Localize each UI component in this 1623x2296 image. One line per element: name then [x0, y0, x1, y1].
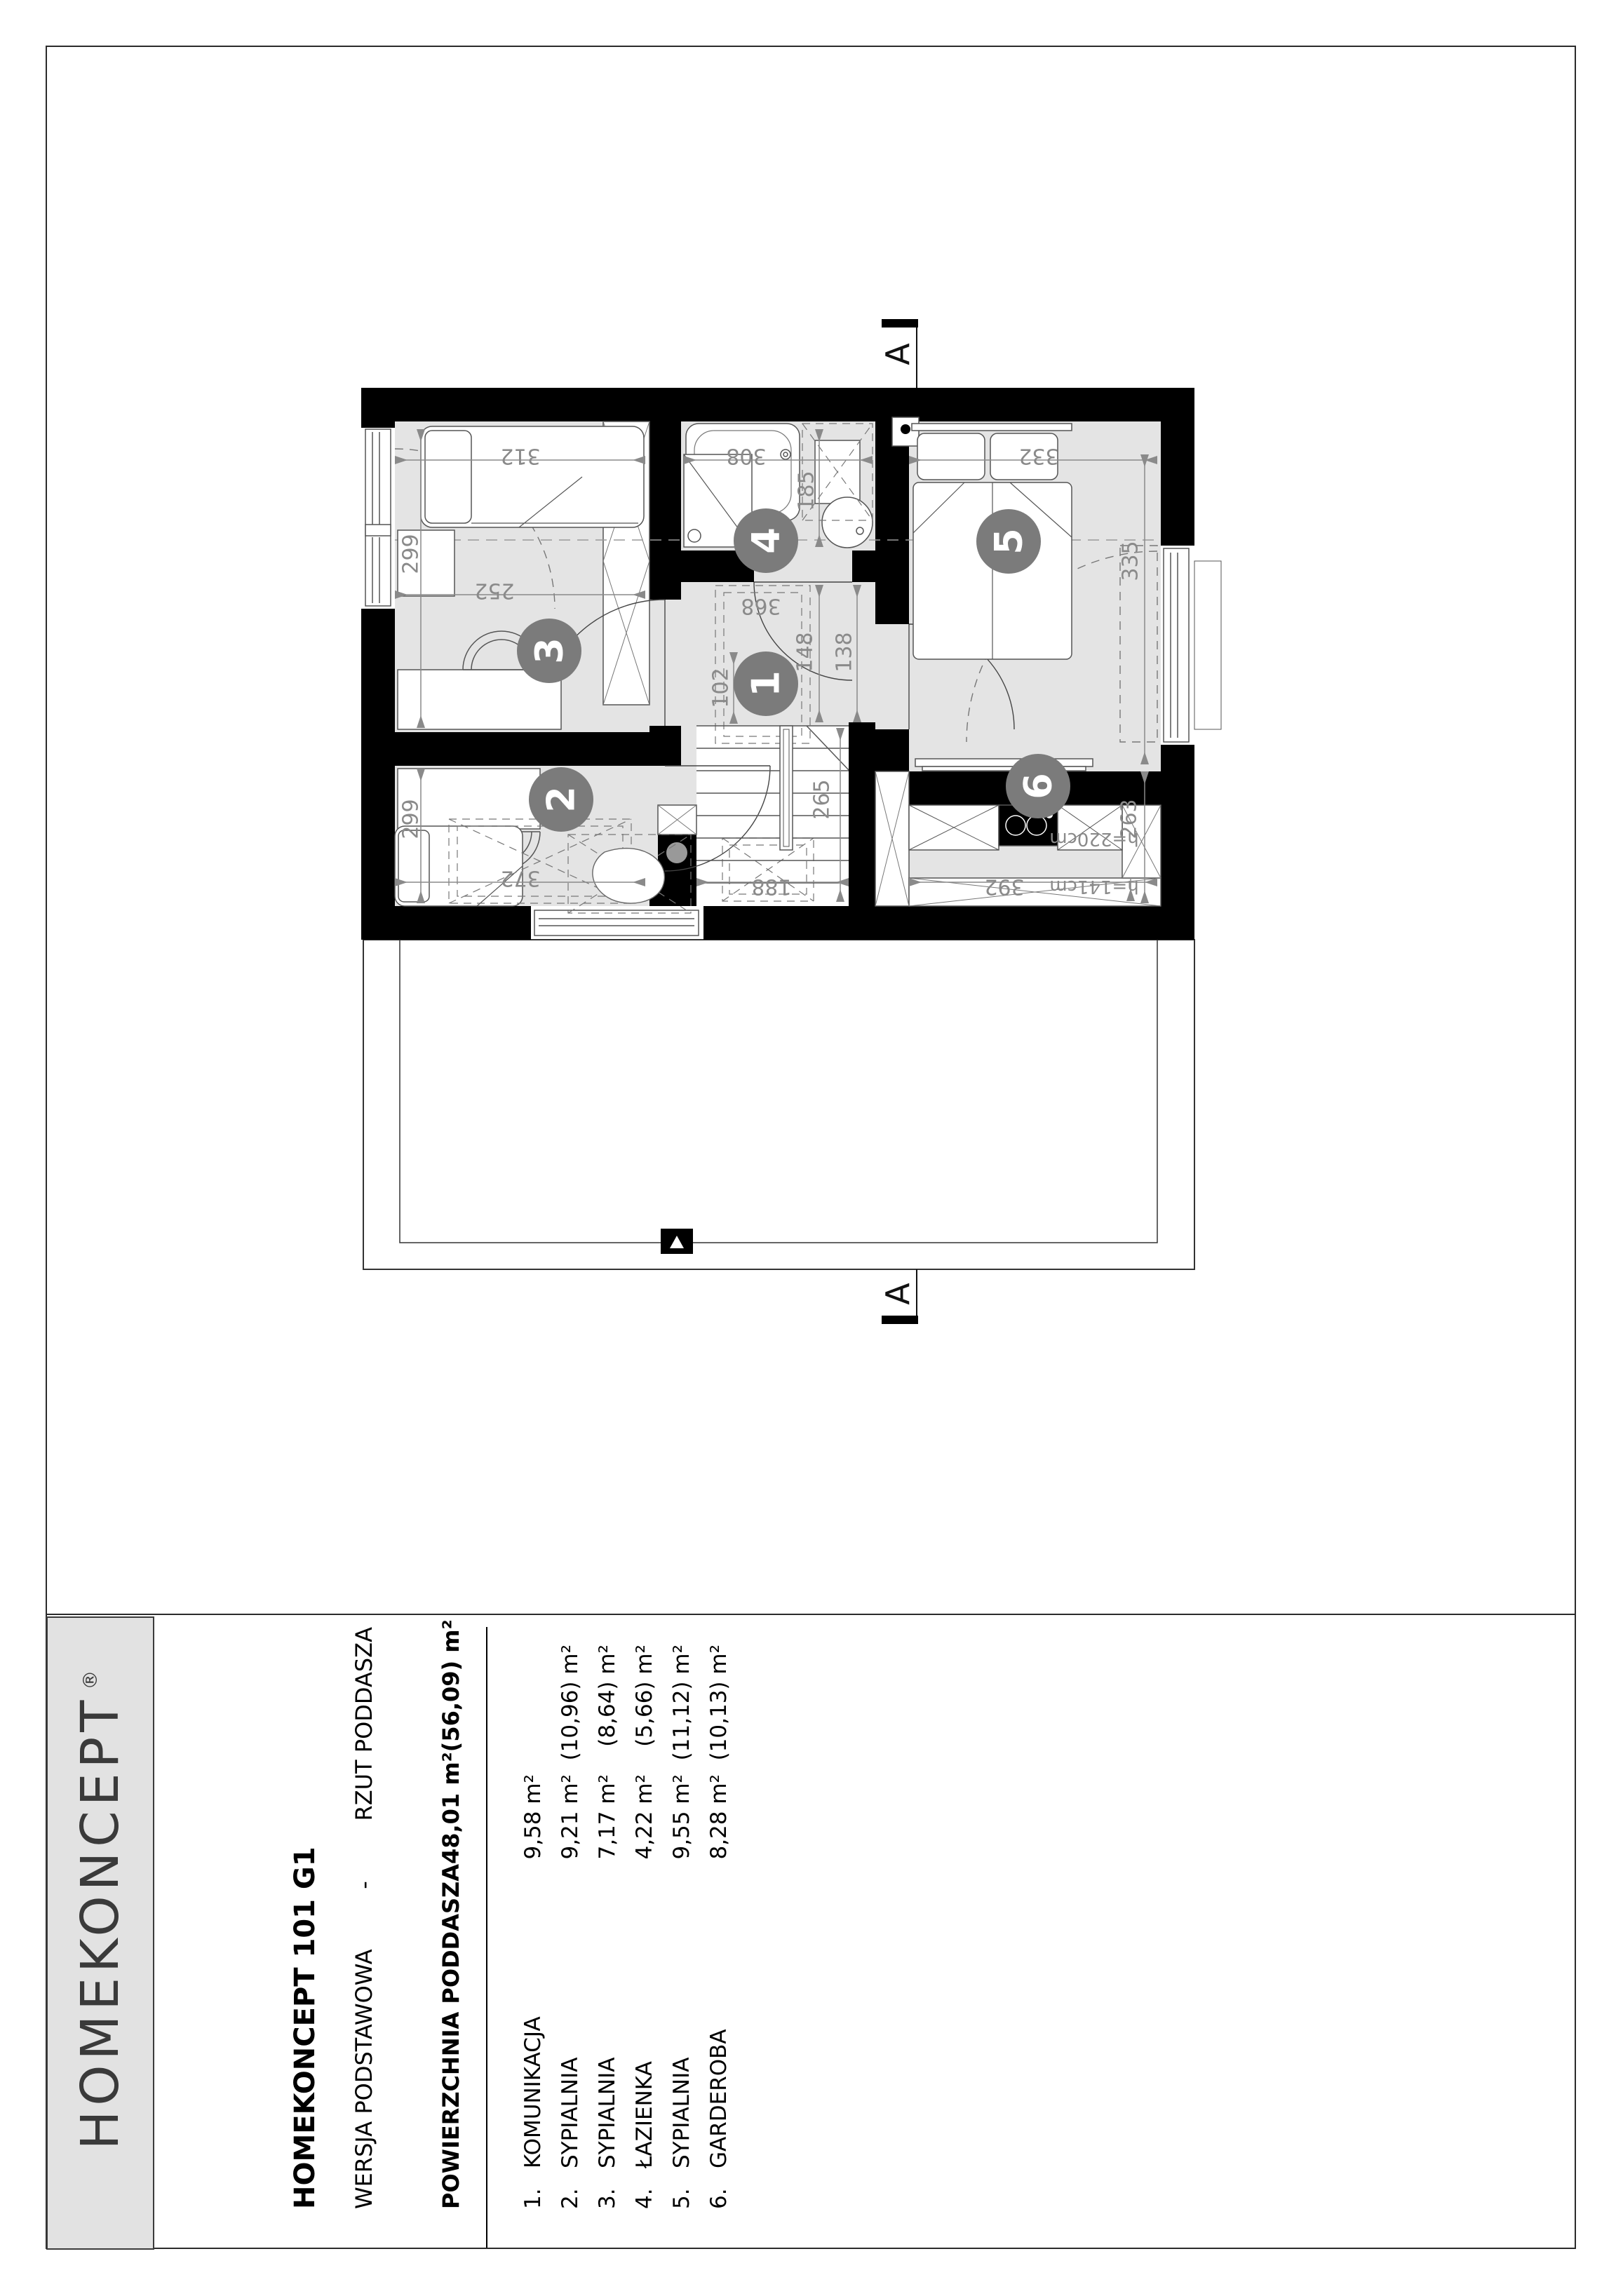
room-list-item: 4.ŁAZIENKA4,22 m²(5,66) m²	[632, 1627, 657, 2209]
svg-text:188: 188	[751, 874, 791, 899]
room-list-no: 3.	[595, 2168, 620, 2209]
room-list-name: SYPIALNIA	[558, 1879, 583, 2168]
svg-text:252: 252	[474, 579, 514, 603]
svg-text:392: 392	[984, 874, 1024, 899]
svg-text:185: 185	[795, 471, 819, 511]
washbasin	[822, 497, 873, 548]
room-list-name: ŁAZIENKA	[632, 1879, 657, 2168]
room-list-area: 9,58 m²	[520, 1774, 546, 1879]
drawing-page: A A	[0, 0, 1623, 2296]
pillow-left	[917, 433, 985, 480]
room-list-area2: (8,64) m²	[595, 1645, 620, 1774]
room-list-name: GARDEROBA	[706, 1879, 732, 2168]
titleblock-divider	[486, 1627, 487, 2248]
section-marker-top: A	[879, 319, 918, 388]
svg-text:299: 299	[399, 534, 424, 574]
window-left	[365, 429, 391, 606]
view-label: RZUT PODDASZA	[351, 1627, 377, 1821]
room-list-area: 7,17 m²	[595, 1774, 620, 1879]
room-list-area2: (11,12) m²	[669, 1645, 694, 1774]
headboard-room5	[912, 424, 1072, 431]
section-label-bottom: A	[879, 1283, 917, 1305]
wall-vent-dot	[901, 424, 910, 434]
svg-text:368: 368	[741, 594, 781, 619]
room-list-area: 4,22 m²	[632, 1774, 657, 1879]
room-6-number: 6	[1016, 773, 1060, 799]
window-right	[1164, 548, 1189, 742]
floor-plan: A A	[0, 0, 1623, 2296]
room-list-name: KOMUNIKACJA	[520, 1879, 546, 2168]
area-row: POWIERZCHNIA PODDASZA 48,01 m² (56,09) m…	[438, 1627, 464, 2209]
room-list-area2: (10,96) m²	[558, 1645, 583, 1774]
svg-text:335: 335	[1119, 541, 1143, 581]
project-title: HOMEKONCEPT 101 G1	[289, 1627, 321, 2209]
room-list-no: 6.	[706, 2168, 732, 2209]
section-label-top: A	[879, 343, 917, 365]
area-label: POWIERZCHNIA PODDASZA	[438, 1864, 464, 2209]
svg-text:148: 148	[793, 632, 818, 672]
svg-text:102: 102	[709, 668, 734, 708]
room-list-no: 1.	[520, 2168, 546, 2209]
svg-text:312: 312	[500, 444, 540, 468]
room-4-number: 4	[744, 527, 788, 554]
room-list-item: 1.KOMUNIKACJA9,58 m²	[520, 1627, 546, 2209]
svg-text:372: 372	[500, 866, 540, 891]
room-list-area: 8,28 m²	[706, 1774, 732, 1879]
brand-logo: HOMEKONCEPT®	[70, 1599, 130, 2216]
room-list-name: SYPIALNIA	[669, 1879, 694, 2168]
svg-text:263: 263	[1117, 799, 1142, 839]
window-right-sill	[1194, 561, 1221, 729]
room-list-item: 2.SYPIALNIA9,21 m²(10,96) m²	[558, 1627, 583, 2209]
room-list-no: 5.	[669, 2168, 694, 2209]
room-3-number: 3	[527, 637, 572, 664]
project-title-text: HOMEKONCEPT 101 G1	[289, 1846, 321, 2209]
stair-rail	[780, 726, 793, 850]
room-list-item: 6.GARDEROBA8,28 m²(10,13) m²	[706, 1627, 732, 2209]
room-2-number: 2	[539, 786, 584, 813]
svg-text:h=141cm: h=141cm	[1049, 876, 1139, 897]
svg-text:299: 299	[399, 799, 424, 839]
version-label: WERSJA PODSTAWOWA	[351, 1949, 377, 2209]
area-value-gross: (56,09) m²	[438, 1619, 464, 1752]
room-5-number: 5	[987, 528, 1031, 555]
room-list-area2: (5,66) m²	[632, 1645, 657, 1774]
svg-text:138: 138	[833, 632, 857, 672]
titleblock-top-rule	[46, 1614, 1576, 1615]
svg-text:308: 308	[726, 444, 766, 468]
version-row: WERSJA PODSTAWOWA - RZUT PODDASZA	[351, 1627, 377, 2209]
room-list-name: SYPIALNIA	[595, 1879, 620, 2168]
section-marker-bottom: A	[879, 1269, 918, 1324]
terrace-outline	[363, 940, 1194, 1269]
room-list-area: 9,21 m²	[558, 1774, 583, 1879]
brand-logo-text: HOMEKONCEPT	[70, 1696, 130, 2150]
area-value: 48,01 m²	[438, 1752, 464, 1864]
room-list-no: 4.	[632, 2168, 657, 2209]
registered-mark: ®	[79, 1666, 102, 1690]
room-list-area2: (10,13) m²	[706, 1645, 732, 1774]
room-1-number: 1	[744, 670, 788, 697]
svg-text:265: 265	[810, 779, 835, 819]
sideboard-room5	[915, 759, 1093, 767]
room-list-item: 5.SYPIALNIA9,55 m²(11,12) m²	[669, 1627, 694, 2209]
room-list-area: 9,55 m²	[669, 1774, 694, 1879]
version-separator: -	[351, 1881, 377, 1889]
svg-text:332: 332	[1018, 444, 1058, 468]
room-list-item: 3.SYPIALNIA7,17 m²(8,64) m²	[595, 1627, 620, 2209]
window-bottom	[534, 910, 699, 936]
chimney-flue	[666, 842, 687, 863]
room-list-no: 2.	[558, 2168, 583, 2209]
